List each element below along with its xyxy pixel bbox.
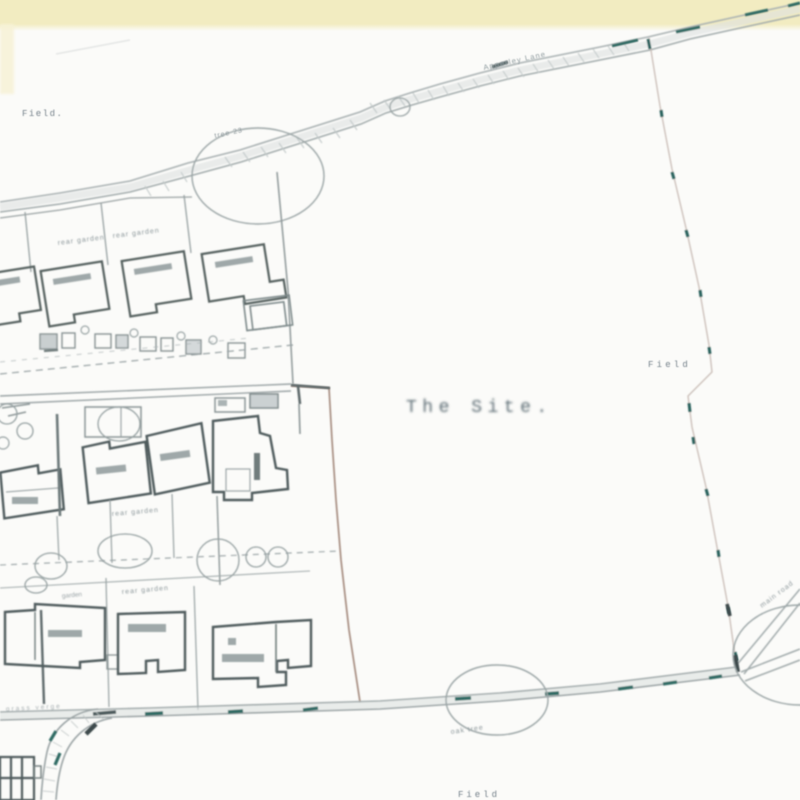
svg-text:Field.: Field. (22, 109, 63, 119)
svg-text:Field: Field (648, 360, 691, 370)
svg-text:Field: Field (458, 790, 500, 800)
svg-text:The Site.: The Site. (406, 398, 553, 418)
